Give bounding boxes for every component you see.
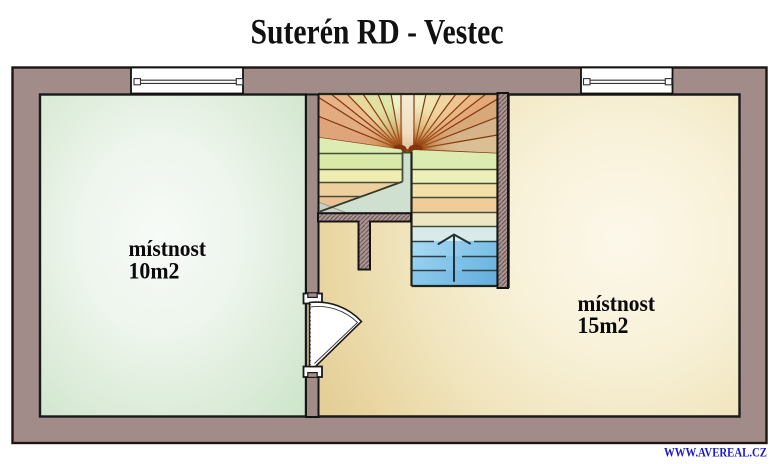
svg-text:místnost: místnost [129, 236, 207, 261]
svg-text:Suterén RD - Vestec: Suterén RD - Vestec [251, 12, 504, 52]
svg-text:10m2: 10m2 [129, 259, 180, 284]
svg-text:15m2: 15m2 [578, 313, 629, 338]
svg-text:WWW.AVEREAL.CZ: WWW.AVEREAL.CZ [664, 445, 767, 460]
